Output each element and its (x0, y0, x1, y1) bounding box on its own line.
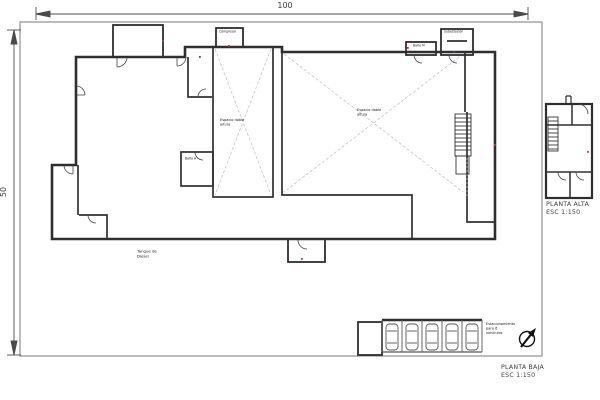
floor-plan-canvas (0, 0, 600, 400)
car-symbols (386, 324, 478, 350)
parking-annex-box (358, 322, 382, 355)
drawing-sheet: 100 50 Compresor Subestación Baño M Baño… (0, 0, 600, 400)
dim-width-label: 100 (270, 1, 300, 11)
dim-height-label: 50 (0, 184, 9, 200)
stairs-symbol-alta (548, 117, 558, 151)
room-label-espacio-doble-der: Espacio doble altura (357, 108, 402, 117)
car-symbol (466, 324, 478, 350)
planta-alta-title: PLANTA ALTA (546, 201, 600, 209)
service-rooms (113, 25, 473, 355)
interior-walls (78, 41, 495, 239)
planta-alta-plan (546, 96, 592, 198)
planta-alta-scale: ESC 1:150 (546, 209, 600, 217)
stairs-symbol-main (455, 114, 471, 174)
car-symbol (446, 324, 458, 350)
parking-area (382, 320, 482, 352)
door-swing-arcs (64, 55, 457, 249)
car-symbol (406, 324, 418, 350)
roof-access-box (113, 25, 163, 57)
room-label-compresor: Compresor (219, 30, 246, 34)
room-label-subestacion: Subestación (444, 30, 476, 34)
room-label-bano-h: Baño H (185, 157, 212, 161)
car-symbol (386, 324, 398, 350)
sheet-border (20, 22, 542, 356)
label-estacionamiento: Estacionamiento para 6 vehículos (486, 322, 536, 336)
car-symbol (426, 324, 438, 350)
room-label-bano-m: Baño M (413, 44, 440, 48)
cad-grip-markers (162, 40, 589, 260)
south-vestibule-room (288, 239, 325, 262)
label-tanque-diesel: Tanque de Diesel (137, 249, 187, 259)
planta-baja-scale: ESC 1:150 (501, 372, 571, 380)
room-label-espacio-doble-izq: Espacio doble altura (220, 118, 265, 127)
planta-baja-title: PLANTA BAJA (501, 364, 571, 372)
